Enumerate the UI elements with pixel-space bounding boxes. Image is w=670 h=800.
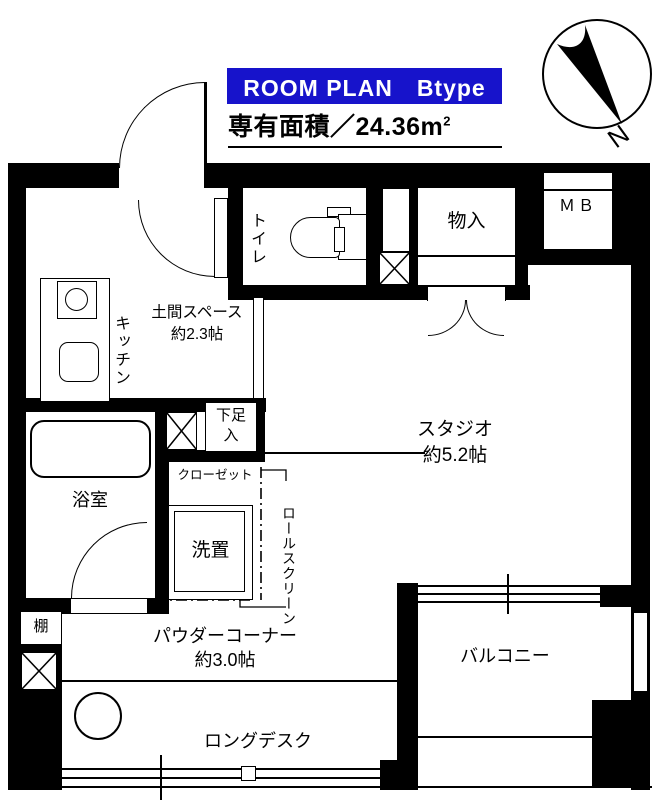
shelf-label: 棚 xyxy=(20,618,62,635)
toilet-door-leaf xyxy=(214,198,228,278)
window-south xyxy=(62,768,380,788)
stool-circle xyxy=(74,692,122,740)
toilet-flush-detail xyxy=(334,227,345,252)
closet-label: クローゼット xyxy=(170,468,260,482)
kitchen-burner-icon xyxy=(57,281,97,319)
north-arrow-icon xyxy=(557,25,622,124)
wall-bottom-stub xyxy=(380,760,398,790)
floor-plan: ROOM PLAN Btype 専有面積／24.36m2 N xyxy=(0,0,670,800)
wall-left xyxy=(8,163,26,615)
studio-label: スタジオ xyxy=(395,419,515,441)
meter-box-line xyxy=(544,189,612,191)
storage-door-opening xyxy=(427,287,506,301)
pipe-space-x-icon xyxy=(166,412,197,450)
window-south-mullion xyxy=(160,755,162,800)
storage-double-door-arc-right xyxy=(466,300,504,336)
long-desk-label: ロングデスク xyxy=(198,731,318,752)
room-plan-title: ROOM PLAN Btype xyxy=(227,68,502,104)
area-label: 専有面積／24.36m2 xyxy=(228,107,502,148)
long-desk-line xyxy=(62,680,397,682)
toilet-bowl xyxy=(290,217,340,258)
storage-shelf-line xyxy=(418,255,515,257)
powder-corner-label: パウダーコーナー xyxy=(110,626,340,647)
storage-double-door-arc-left xyxy=(428,300,466,336)
bathroom-label: 浴室 xyxy=(53,490,127,511)
wall-balcony-block xyxy=(592,700,650,788)
kitchen-sink xyxy=(59,342,99,382)
wall-storage-east xyxy=(515,163,528,300)
wall-storage-west xyxy=(410,188,418,300)
toilet-label: トイレ xyxy=(243,199,265,279)
balcony-slab-line xyxy=(418,736,634,738)
toilet-door-arc xyxy=(138,200,215,277)
bathroom-door-arc xyxy=(71,522,147,598)
studio-size-label: 約5.2帖 xyxy=(395,445,515,467)
entrance-door-arc xyxy=(119,82,205,168)
window-handle xyxy=(241,766,256,781)
window-balcony xyxy=(418,585,600,603)
doma-step-edge xyxy=(253,298,264,398)
shoe-storage-label: 下足入 xyxy=(211,406,251,447)
pipe-space-x-icon xyxy=(21,652,57,690)
bathroom-door-leaf xyxy=(70,598,148,614)
balcony-outer-line xyxy=(397,786,652,788)
doma-size-label: 約2.3帖 xyxy=(147,326,247,344)
compass-north-label: N xyxy=(602,119,635,154)
wall-toilet-west xyxy=(228,163,243,300)
storage-label: 物入 xyxy=(418,211,515,233)
wall-right xyxy=(631,163,650,790)
roll-screen-label: ロールスクリーン xyxy=(277,482,297,650)
doma-label: 土間スペース xyxy=(147,304,247,322)
laundry-label: 洗置 xyxy=(173,540,248,562)
balcony-label: バルコニー xyxy=(445,646,565,667)
meter-box-label: ＭＢ xyxy=(543,198,613,216)
bathtub xyxy=(30,420,151,478)
balcony-partition-slot xyxy=(633,612,648,692)
burner-circle xyxy=(65,288,88,311)
wall-balcony-west xyxy=(397,583,418,790)
compass: N xyxy=(540,8,665,163)
powder-corner-size-label: 約3.0帖 xyxy=(110,650,340,671)
kitchen-label: キッチン xyxy=(107,299,129,403)
wall-window-right xyxy=(600,585,631,607)
niche-box xyxy=(382,188,410,252)
window-balcony-mullion xyxy=(507,574,509,614)
room-plan-title-text: ROOM PLAN Btype xyxy=(243,69,485,103)
pipe-space-x-icon xyxy=(379,252,410,285)
